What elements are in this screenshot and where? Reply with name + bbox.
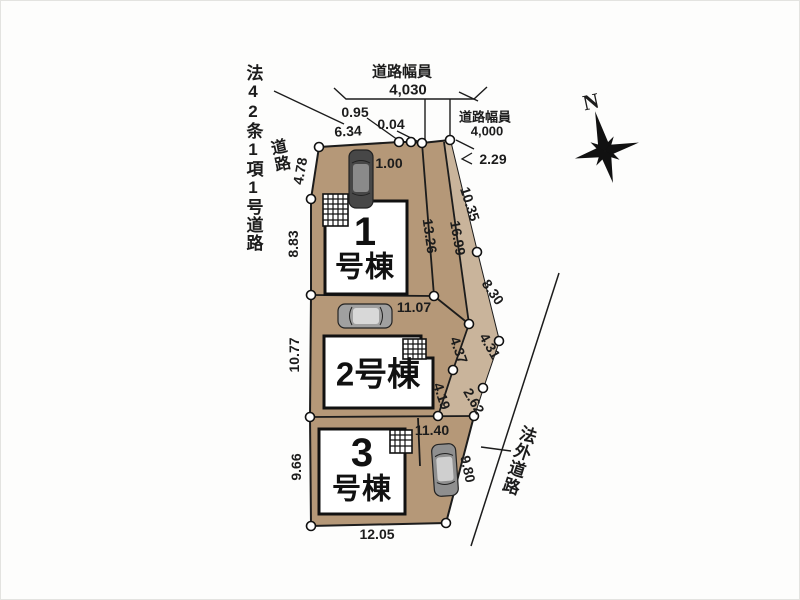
building-3-suffix: 号棟 [332,476,392,505]
dim-0-95: 0.95 [341,105,368,119]
site-plan-page: 道路幅員 4,030 道路幅員 4,000 法42条1項1号道路 道路 法外道路… [0,0,800,600]
dim-2-29: 2.29 [479,152,506,166]
building-1-suffix: 号棟 [335,254,395,283]
road-width-value-top: 4,030 [389,83,427,98]
car-icon-2 [338,304,392,328]
dim-9-66: 9.66 [289,453,303,480]
dim-11-07: 11.07 [397,300,431,314]
dim-8-83: 8.83 [286,230,300,257]
road-width-caption-top: 道路幅員 [372,65,432,80]
compass-rose-icon [565,103,647,191]
dim-0-04: 0.04 [377,117,404,131]
dim-6-34: 6.34 [334,123,362,138]
road-width-caption-right: 道路幅員 [459,111,511,124]
dim-arrow-2-29 [462,153,472,164]
road-designation-label: 法42条1項1号道路 [245,64,262,252]
car-icon-3 [431,443,459,497]
dim-1-00: 1.00 [375,156,402,170]
building-2-label: 2号棟 [336,358,420,391]
entrance-steps-1 [323,194,348,226]
dim-10-77: 10.77 [287,337,301,372]
car-icon-1 [349,150,373,208]
building-3-number: 3 [351,433,373,473]
building-1-number: 1 [354,212,376,252]
entrance-steps-3 [390,430,412,453]
road-width-value-right: 4,000 [471,125,504,138]
dim-12-05: 12.05 [359,527,394,541]
dim-11-40: 11.40 [415,423,449,437]
